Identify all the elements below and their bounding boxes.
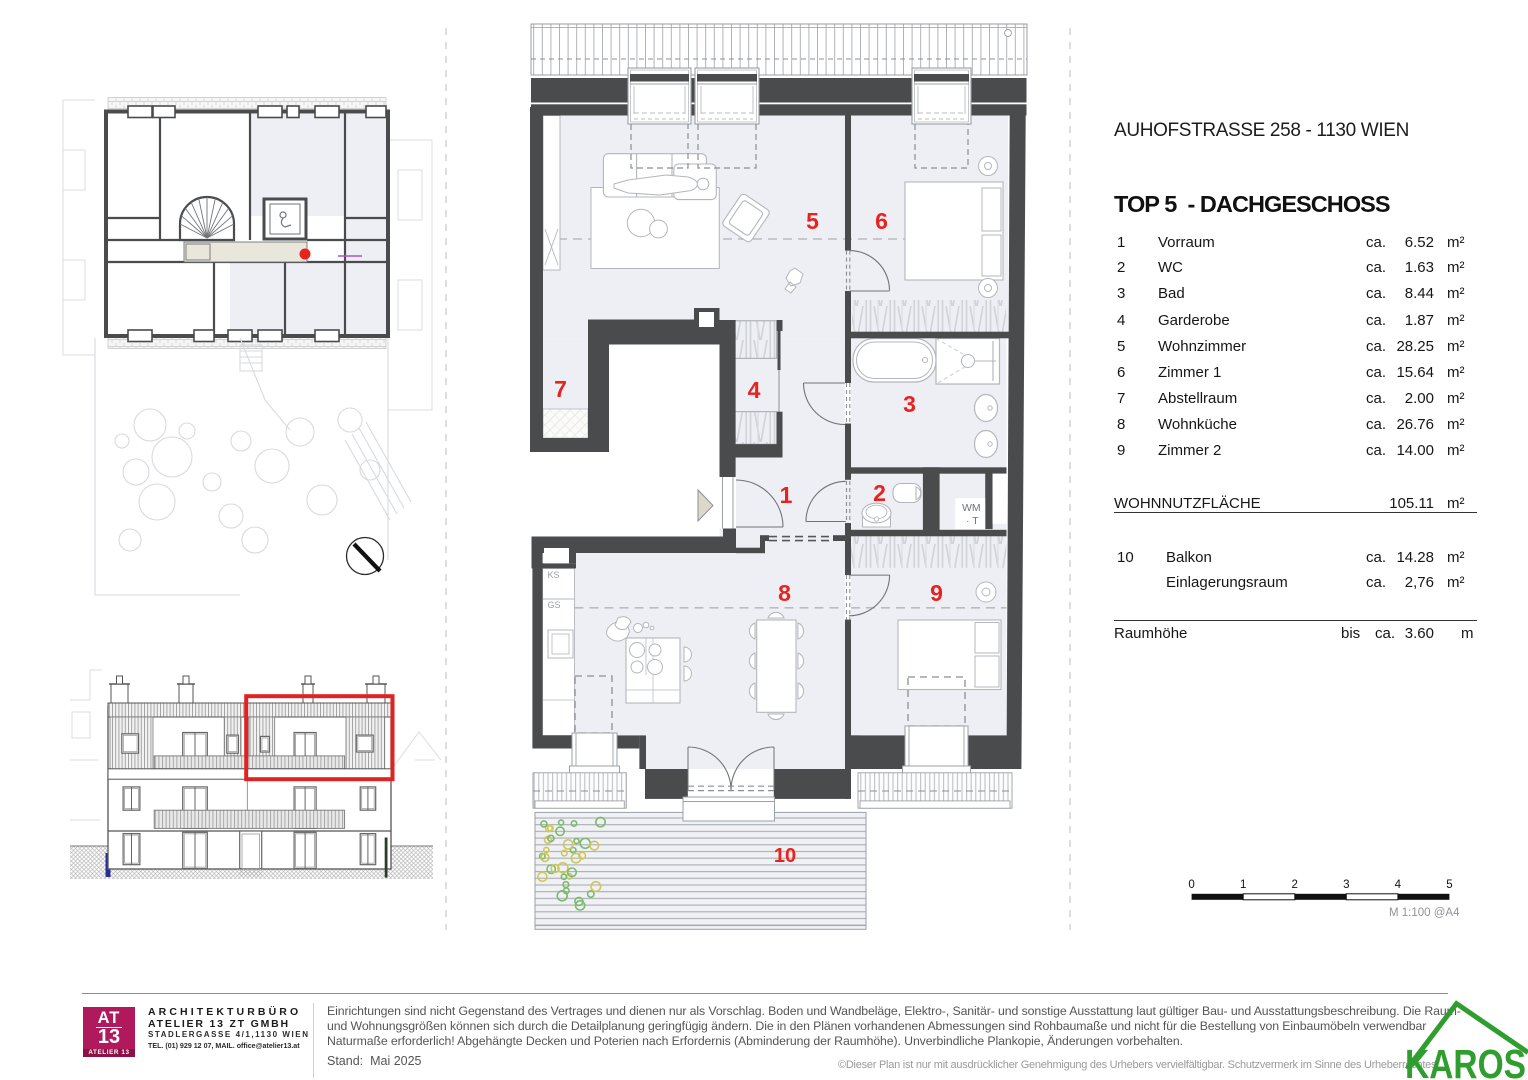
svg-text:5: 5 bbox=[1446, 879, 1452, 891]
svg-text:1: 1 bbox=[780, 482, 793, 508]
svg-text:GS: GS bbox=[548, 600, 561, 610]
svg-text:10: 10 bbox=[774, 845, 796, 867]
svg-text:8: 8 bbox=[778, 580, 791, 606]
svg-text:2: 2 bbox=[873, 480, 886, 506]
svg-text:0: 0 bbox=[1188, 879, 1194, 891]
svg-text:3: 3 bbox=[903, 391, 916, 417]
svg-text:9: 9 bbox=[930, 580, 943, 606]
svg-text:6: 6 bbox=[875, 208, 888, 234]
svg-text:KAROS: KAROS bbox=[1405, 1041, 1526, 1080]
svg-text:WM: WM bbox=[962, 502, 981, 514]
svg-text:KS: KS bbox=[548, 570, 560, 580]
svg-text:5: 5 bbox=[806, 208, 819, 234]
svg-text:1: 1 bbox=[1240, 879, 1246, 891]
svg-text:· T: · T bbox=[966, 515, 979, 527]
svg-text:M 1:100 @A4: M 1:100 @A4 bbox=[1389, 907, 1460, 919]
svg-text:4: 4 bbox=[748, 377, 761, 403]
svg-text:4: 4 bbox=[1395, 879, 1402, 891]
svg-text:7: 7 bbox=[554, 376, 567, 402]
svg-text:2: 2 bbox=[1291, 879, 1297, 891]
svg-text:3: 3 bbox=[1343, 879, 1349, 891]
